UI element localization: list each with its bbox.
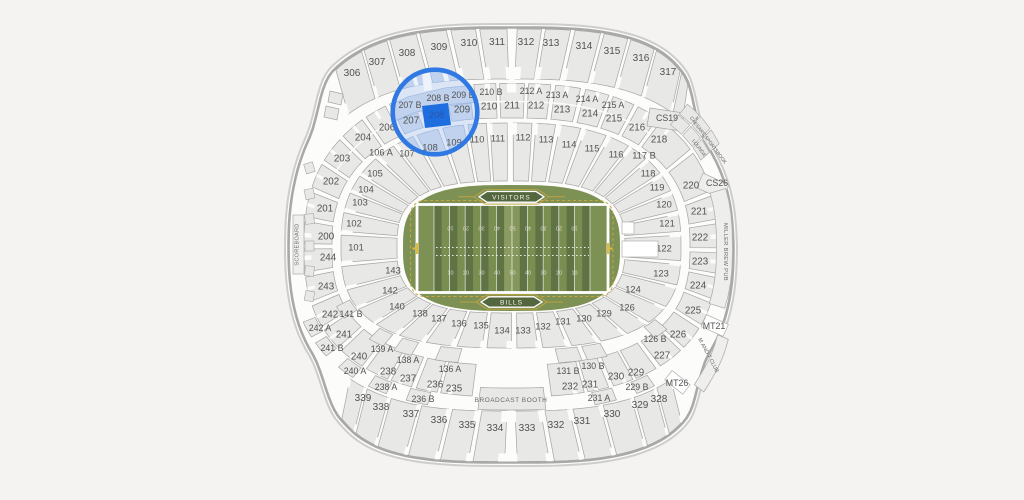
svg-text:103: 103 [352,198,368,208]
svg-text:118: 118 [641,169,656,179]
svg-text:132: 132 [535,322,551,332]
svg-text:204: 204 [355,133,372,144]
svg-text:214 A: 214 A [576,94,599,104]
svg-text:216: 216 [629,123,646,134]
svg-text:328: 328 [651,394,668,405]
svg-text:200: 200 [318,232,335,243]
svg-text:242 A: 242 A [309,323,332,333]
svg-text:237: 237 [400,374,416,385]
svg-text:215 A: 215 A [602,100,625,110]
svg-text:213: 213 [554,105,571,116]
svg-text:229 B: 229 B [626,382,649,392]
svg-text:122: 122 [656,244,672,254]
svg-text:333: 333 [519,423,536,434]
svg-text:311: 311 [489,37,505,48]
svg-text:241: 241 [336,330,352,341]
svg-text:235: 235 [446,384,463,395]
svg-text:CS26: CS26 [706,178,728,188]
svg-text:106 A: 106 A [369,148,394,158]
svg-text:332: 332 [548,420,565,431]
svg-text:213 A: 213 A [546,90,569,100]
svg-text:140: 140 [389,302,405,312]
svg-text:123: 123 [653,269,669,279]
svg-text:227: 227 [654,351,670,362]
svg-text:339: 339 [355,393,372,404]
svg-text:101: 101 [348,243,364,253]
svg-text:115: 115 [585,144,600,154]
svg-text:314: 314 [576,41,593,52]
svg-text:203: 203 [334,154,351,165]
svg-text:126: 126 [619,303,635,313]
svg-text:40: 40 [525,271,531,277]
svg-text:30: 30 [478,271,484,277]
svg-text:241 B: 241 B [321,343,344,353]
svg-text:126 B: 126 B [644,334,667,344]
svg-text:10: 10 [447,271,453,277]
svg-text:335: 335 [459,420,476,431]
svg-text:232: 232 [562,382,578,393]
svg-text:138: 138 [412,309,428,319]
svg-text:231: 231 [582,380,598,391]
svg-text:142: 142 [382,286,398,296]
svg-text:138 A: 138 A [397,355,420,365]
svg-text:331: 331 [574,416,591,427]
svg-text:336: 336 [431,415,448,426]
svg-text:141 B: 141 B [340,309,363,319]
svg-text:226: 226 [670,330,687,341]
svg-text:309: 309 [431,42,448,53]
svg-text:50: 50 [509,271,515,277]
svg-text:238 A: 238 A [375,382,398,392]
svg-text:137: 137 [431,314,447,324]
svg-text:139 A: 139 A [371,344,394,354]
svg-text:244: 244 [320,253,337,264]
svg-text:230: 230 [608,372,625,383]
svg-text:231 A: 231 A [588,393,611,403]
svg-text:131 B: 131 B [557,366,580,376]
svg-text:113: 113 [539,135,554,145]
svg-text:242: 242 [322,310,338,321]
svg-text:218: 218 [651,135,668,146]
svg-text:MILLER BREW PUB: MILLER BREW PUB [722,223,728,281]
svg-text:211: 211 [504,101,520,112]
svg-text:124: 124 [625,285,641,295]
svg-text:BROADCAST BOOTH: BROADCAST BOOTH [475,397,548,404]
svg-text:220: 220 [683,181,700,192]
svg-text:MT26: MT26 [666,378,689,388]
svg-text:20: 20 [463,271,469,277]
svg-text:135: 135 [473,321,489,331]
svg-text:209: 209 [454,105,470,116]
svg-text:30: 30 [540,225,546,231]
svg-text:40: 40 [525,225,531,231]
svg-text:BILLS: BILLS [500,300,523,307]
svg-text:202: 202 [323,177,339,188]
svg-text:229: 229 [628,368,644,379]
svg-text:10: 10 [571,225,577,231]
svg-text:SCOREBOARD: SCOREBOARD [295,223,301,265]
svg-text:240: 240 [351,352,368,363]
svg-text:317: 317 [660,67,677,78]
svg-text:240 A: 240 A [344,366,367,376]
svg-text:VISITORS: VISITORS [492,194,531,201]
svg-text:MT21: MT21 [703,321,726,331]
svg-text:130: 130 [576,314,592,324]
svg-text:330: 330 [604,409,621,420]
svg-text:117 B: 117 B [632,151,656,161]
svg-text:338: 338 [373,402,390,413]
svg-text:310: 310 [461,38,478,49]
svg-text:134: 134 [494,326,510,336]
svg-text:20: 20 [556,225,562,231]
svg-text:306: 306 [344,68,361,79]
svg-text:143: 143 [385,266,401,276]
svg-text:136 A: 136 A [439,364,462,374]
svg-text:112: 112 [516,133,531,143]
svg-text:104: 104 [358,185,374,195]
svg-text:313: 313 [543,38,560,49]
svg-text:308: 308 [399,48,416,59]
svg-text:CS19: CS19 [656,113,678,123]
svg-text:238: 238 [380,367,397,378]
svg-text:236 B: 236 B [412,394,435,404]
svg-text:337: 337 [403,409,420,420]
svg-text:50: 50 [509,225,515,231]
svg-text:329: 329 [632,400,649,411]
svg-text:207: 207 [403,116,419,127]
svg-text:222: 222 [692,233,708,244]
svg-text:131: 131 [555,317,571,327]
svg-text:224: 224 [690,281,707,292]
svg-text:121: 121 [659,219,675,229]
svg-text:208: 208 [429,110,444,120]
svg-text:208 B: 208 B [427,93,450,103]
svg-text:130 B: 130 B [582,361,605,371]
svg-text:221: 221 [691,207,707,218]
svg-text:207 B: 207 B [399,100,422,110]
svg-text:334: 334 [487,423,504,434]
svg-text:136: 136 [451,319,467,329]
svg-text:129: 129 [596,309,612,319]
svg-text:223: 223 [692,257,709,268]
svg-text:111: 111 [491,134,505,144]
svg-text:243: 243 [318,282,335,293]
svg-text:114: 114 [562,140,577,150]
svg-text:20: 20 [556,271,562,277]
svg-text:210 B: 210 B [480,87,503,97]
svg-text:225: 225 [685,306,702,317]
svg-text:30: 30 [540,271,546,277]
svg-text:307: 307 [369,57,386,68]
svg-text:40: 40 [494,271,500,277]
svg-text:119: 119 [650,183,665,193]
svg-text:315: 315 [604,46,621,57]
svg-text:40: 40 [494,225,500,231]
svg-text:105: 105 [367,169,383,179]
svg-text:20: 20 [463,225,469,231]
svg-text:30: 30 [478,225,484,231]
svg-text:10: 10 [447,225,453,231]
svg-text:215: 215 [606,114,623,125]
svg-text:236: 236 [427,380,444,391]
svg-text:116: 116 [609,150,624,160]
svg-text:201: 201 [317,204,333,215]
svg-text:133: 133 [515,326,531,336]
svg-text:214: 214 [582,109,599,120]
svg-text:212 A: 212 A [520,86,543,96]
svg-text:10: 10 [571,271,577,277]
svg-text:316: 316 [633,53,650,64]
svg-text:120: 120 [656,200,672,210]
svg-text:312: 312 [518,37,535,48]
svg-text:212: 212 [528,101,544,112]
svg-text:102: 102 [346,219,362,229]
svg-text:210: 210 [481,102,498,113]
